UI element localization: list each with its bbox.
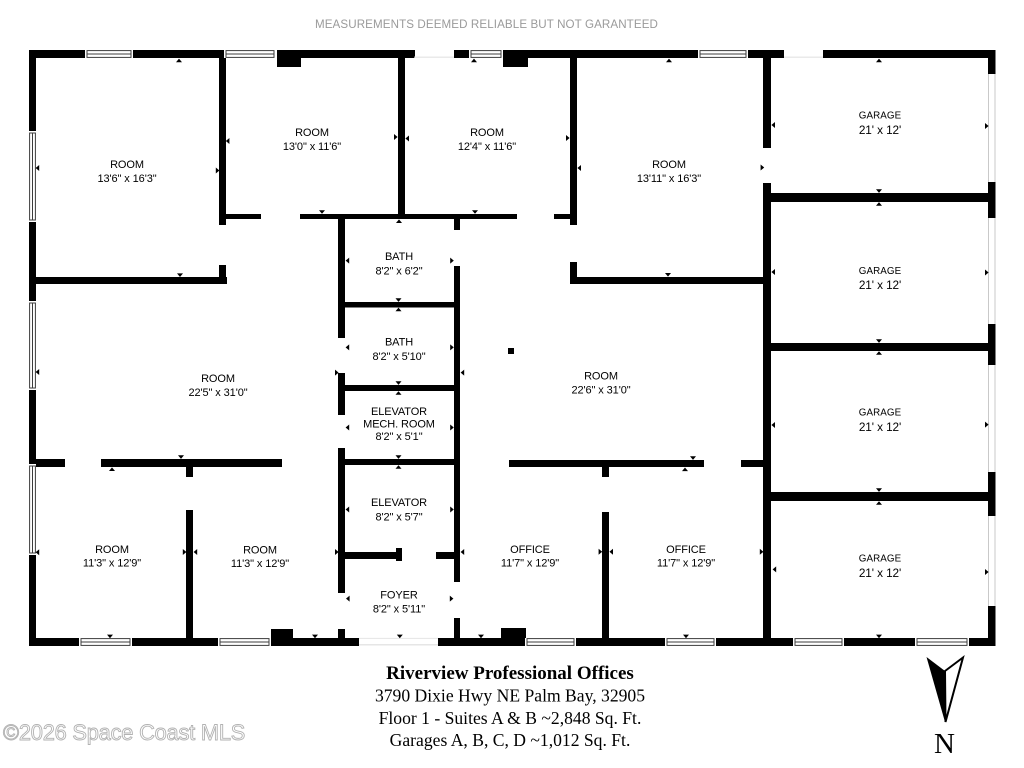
svg-text:8'2" x 5'7": 8'2" x 5'7" (376, 511, 423, 523)
svg-text:ROOM: ROOM (584, 371, 618, 383)
svg-text:OFFICE: OFFICE (666, 544, 706, 556)
svg-text:13'11" x 16'3": 13'11" x 16'3" (637, 173, 701, 185)
svg-text:GARAGE: GARAGE (859, 266, 902, 277)
svg-text:FOYER: FOYER (380, 589, 418, 601)
svg-text:11'7" x 12'9": 11'7" x 12'9" (657, 558, 715, 570)
svg-text:22'5" x 31'0": 22'5" x 31'0" (188, 387, 247, 399)
svg-text:BATH: BATH (385, 337, 413, 349)
svg-text:BATH: BATH (385, 251, 413, 263)
svg-text:Riverview Professional Offices: Riverview Professional Offices (386, 663, 634, 684)
svg-text:13'0" x 11'6": 13'0" x 11'6" (283, 141, 341, 153)
svg-text:ROOM: ROOM (295, 127, 329, 139)
svg-text:©2026 Space Coast MLS: ©2026 Space Coast MLS (3, 720, 245, 745)
svg-text:13'6" x 16'3": 13'6" x 16'3" (97, 173, 156, 185)
svg-text:8'2" x 5'11": 8'2" x 5'11" (373, 603, 425, 615)
svg-text:22'6" x 31'0": 22'6" x 31'0" (571, 385, 630, 397)
svg-text:21' x 12': 21' x 12' (859, 278, 901, 292)
svg-text:Garages A, B, C, D ~1,012 Sq.: Garages A, B, C, D ~1,012 Sq. Ft. (390, 730, 631, 750)
svg-text:8'2" x 5'10": 8'2" x 5'10" (372, 351, 425, 363)
svg-text:OFFICE: OFFICE (510, 544, 550, 556)
svg-text:8'2" x 6'2": 8'2" x 6'2" (376, 265, 423, 277)
svg-text:ROOM: ROOM (243, 545, 277, 557)
svg-text:GARAGE: GARAGE (859, 111, 902, 122)
svg-text:GARAGE: GARAGE (859, 554, 902, 565)
svg-text:21' x 12': 21' x 12' (859, 420, 901, 434)
svg-text:ROOM: ROOM (110, 159, 144, 171)
svg-text:MEASUREMENTS DEEMED RELIABLE B: MEASUREMENTS DEEMED RELIABLE BUT NOT GAR… (315, 18, 658, 31)
svg-text:ROOM: ROOM (95, 544, 129, 556)
svg-text:ELEVATOR: ELEVATOR (371, 497, 427, 509)
svg-text:MECH. ROOM: MECH. ROOM (363, 418, 435, 430)
svg-text:3790 Dixie Hwy NE Palm Bay, 32: 3790 Dixie Hwy NE Palm Bay, 32905 (375, 686, 645, 706)
svg-text:12'4" x 11'6": 12'4" x 11'6" (458, 141, 516, 153)
svg-text:8'2" x 5'1": 8'2" x 5'1" (376, 431, 423, 443)
svg-text:ROOM: ROOM (201, 373, 235, 385)
svg-text:21' x 12': 21' x 12' (859, 566, 901, 580)
svg-text:ROOM: ROOM (652, 159, 686, 171)
svg-text:11'3" x 12'9": 11'3" x 12'9" (83, 558, 141, 570)
svg-text:ROOM: ROOM (470, 127, 504, 139)
svg-text:Floor 1 - Suites A & B ~2,848: Floor 1 - Suites A & B ~2,848 Sq. Ft. (379, 708, 642, 728)
svg-text:11'3" x 12'9": 11'3" x 12'9" (231, 558, 289, 570)
svg-text:GARAGE: GARAGE (859, 407, 902, 418)
svg-text:ELEVATOR: ELEVATOR (371, 406, 427, 418)
svg-text:11'7" x 12'9": 11'7" x 12'9" (501, 558, 559, 570)
svg-text:N: N (934, 728, 955, 760)
svg-text:21' x 12': 21' x 12' (859, 123, 901, 137)
